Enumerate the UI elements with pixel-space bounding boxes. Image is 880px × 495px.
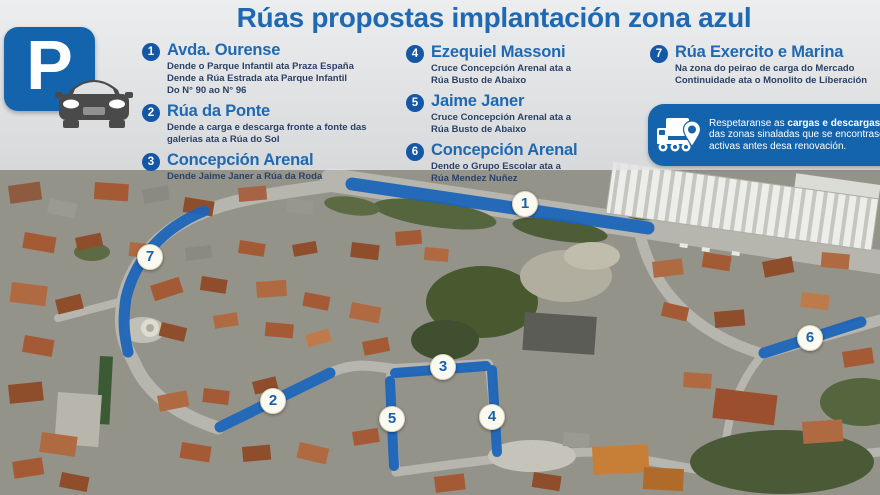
map-marker-5: 5: [379, 406, 405, 432]
item-number-badge: 4: [406, 45, 424, 63]
legend-item-7: 7 Rúa Exercito e Marina Na zona do peira…: [650, 43, 880, 87]
note-text-rest: das zonas sinaladas que se encontrasen a…: [709, 129, 880, 152]
item-number-badge: 1: [142, 43, 160, 61]
note-text-lead: Respetaranse as: [709, 118, 787, 129]
legend-column-3: 7 Rúa Exercito e Marina Na zona do peira…: [650, 43, 880, 92]
legend-item-5: 5 Jaime Janer Cruce Concepción Arenal at…: [406, 92, 652, 136]
street-description: Dende Jaime Janer a Rúa da Roda: [167, 171, 322, 183]
map-marker-3: 3: [430, 354, 456, 380]
legend-item-6: 6 Concepción Arenal Dende o Grupo Escola…: [406, 141, 652, 185]
item-number-badge: 3: [142, 153, 160, 171]
legend-column-1: 1 Avda. Ourense Dende o Parque Infantil …: [142, 41, 410, 188]
street-description: Dende o Parque Infantil ata Praza España…: [167, 61, 354, 97]
map-marker-1: 1: [512, 191, 538, 217]
legend-item-2: 2 Rúa da Ponte Dende a carga e descarga …: [142, 102, 410, 146]
page-title: Rúas propostas implantación zona azul: [108, 2, 880, 34]
street-name: Concepción Arenal: [167, 151, 322, 170]
note-text: Respetaranse as cargas e descargas das z…: [709, 118, 880, 153]
map-marker-4: 4: [479, 404, 505, 430]
infographic-page: 1 2 3 4 5 6 7 Rúas propostas implantació…: [0, 0, 880, 495]
legend-column-2: 4 Ezequiel Massoni Cruce Concepción Aren…: [406, 43, 652, 190]
car-icon: [55, 64, 133, 136]
street-name: Concepción Arenal: [431, 141, 577, 160]
item-number-badge: 5: [406, 94, 424, 112]
legend-item-1: 1 Avda. Ourense Dende o Parque Infantil …: [142, 41, 410, 97]
street-name: Ezequiel Massoni: [431, 43, 571, 62]
item-number-badge: 6: [406, 143, 424, 161]
map-marker-7: 7: [137, 244, 163, 270]
item-number-badge: 2: [142, 104, 160, 122]
loading-zones-note: Respetaranse as cargas e descargas das z…: [648, 104, 880, 166]
street-description: Dende a carga e descarga fronte a fonte …: [167, 122, 367, 146]
item-number-badge: 7: [650, 45, 668, 63]
legend-item-4: 4 Ezequiel Massoni Cruce Concepción Aren…: [406, 43, 652, 87]
note-text-bold: cargas e descargas: [787, 118, 880, 129]
street-name: Jaime Janer: [431, 92, 571, 111]
street-name: Rúa Exercito e Marina: [675, 43, 867, 62]
street-name: Rúa da Ponte: [167, 102, 367, 121]
street-description: Dende o Grupo Escolar ata a Rúa Mendez N…: [431, 161, 577, 185]
map-marker-2: 2: [260, 388, 286, 414]
map-marker-6: 6: [797, 325, 823, 351]
street-name: Avda. Ourense: [167, 41, 354, 60]
legend-item-3: 3 Concepción Arenal Dende Jaime Janer a …: [142, 151, 410, 183]
street-description: Cruce Concepción Arenal ata a Rúa Busto …: [431, 63, 571, 87]
truck-pin-icon: [656, 115, 702, 155]
street-description: Na zona do peirao de carga do Mercado Co…: [675, 63, 867, 87]
street-description: Cruce Concepción Arenal ata a Rúa Busto …: [431, 112, 571, 136]
